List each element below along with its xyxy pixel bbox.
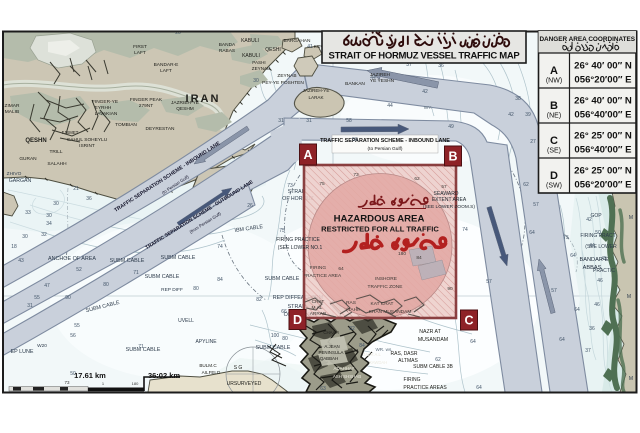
svg-text:74: 74 [462,227,468,233]
svg-text:90: 90 [65,295,71,301]
svg-text:JAZRIEH-YE: JAZRIEH-YE [171,100,199,106]
svg-text:100: 100 [271,333,280,339]
svg-text:M: M [629,376,633,382]
svg-text:JAZR A.L: JAZR A.L [363,352,381,357]
svg-text:NAZR AT: NAZR AT [419,329,441,335]
svg-text:32: 32 [41,232,47,238]
svg-text:80: 80 [282,336,288,342]
svg-text:27: 27 [530,139,536,145]
svg-text:EP LUNE: EP LUNE [11,349,34,355]
svg-text:(NE): (NE) [547,113,561,120]
svg-text:QABBAH: QABBAH [320,356,338,361]
svg-text:FIRING PRACTICE: FIRING PRACTICE [276,237,320,243]
svg-text:64: 64 [338,266,344,272]
svg-text:17.61 km: 17.61 km [74,371,106,380]
svg-text:58: 58 [346,118,352,124]
svg-text:74: 74 [217,244,223,250]
svg-text:TRILL: TRILL [49,149,62,155]
svg-text:A: A [303,148,312,162]
svg-text:D: D [550,170,558,182]
svg-text:B: B [448,150,457,164]
svg-text:21: 21 [73,186,79,192]
svg-text:ZHIVO: ZHIVO [7,171,22,177]
svg-text:64: 64 [470,339,476,345]
svg-text:SUBM CABLE: SUBM CABLE [110,258,145,264]
svg-text:36: 36 [438,63,444,69]
svg-text:QESHM: QESHM [176,106,194,112]
svg-text:TOMBIAN: TOMBIAN [115,122,137,128]
svg-text:BANKAN: BANKAN [345,81,365,87]
svg-text:57: 57 [533,202,539,208]
svg-text:ARRAB: ARRAB [310,311,327,317]
svg-text:180: 180 [132,381,139,386]
svg-text:KAT CRAT: KAT CRAT [371,301,394,307]
svg-text:JAZIREH: JAZIREH [370,72,391,78]
svg-text:82: 82 [256,297,262,303]
svg-text:46: 46 [594,302,600,308]
svg-text:TRAFFIC ZONE: TRAFFIC ZONE [368,284,403,290]
svg-text:MALIB: MALIB [5,109,19,115]
svg-text:38: 38 [515,96,521,102]
svg-text:64: 64 [570,253,576,259]
svg-text:82: 82 [349,326,355,332]
svg-text:M AL: M AL [312,305,323,311]
svg-text:26° 40′ 00″ N: 26° 40′ 00″ N [574,61,632,72]
svg-text:(SEE LOWER NO.1: (SEE LOWER NO.1 [278,245,323,251]
svg-text:57: 57 [551,288,557,294]
svg-text:PENINSULA: PENINSULA [319,350,344,355]
svg-text:(SEE LOWER ZOOM.S): (SEE LOWER ZOOM.S) [423,204,475,210]
svg-text:JAZIREH-YE: JAZIREH-YE [303,88,330,93]
svg-text:31: 31 [306,118,312,124]
svg-text:49: 49 [448,124,454,130]
svg-text:63: 63 [320,386,326,392]
svg-text:SUBM CABLE: SUBM CABLE [126,347,161,353]
svg-text:DEYRESTAN: DEYRESTAN [146,126,175,132]
svg-text:056°20′00″ E: 056°20′00″ E [574,75,632,86]
svg-text:BANDAR-E: BANDAR-E [154,62,179,68]
svg-text:KABULI: KABULI [241,38,259,44]
svg-text:73: 73 [64,380,70,385]
svg-text:(TAHII: (TAHII [346,307,360,313]
svg-text:279NT: 279NT [139,103,153,109]
svg-text:RESTRICTED FOR ALL TRAFFIC: RESTRICTED FOR ALL TRAFFIC [321,225,439,234]
svg-text:S G: S G [234,365,243,371]
svg-text:ZEYNAB: ZEYNAB [277,73,296,79]
svg-text:LARAK: LARAK [308,95,324,100]
svg-text:80: 80 [103,282,109,288]
svg-text:PEY-YE POSHTEN: PEY-YE POSHTEN [262,80,304,86]
svg-text:BANDA: BANDA [219,42,236,48]
svg-text:QESHI: QESHI [265,47,281,53]
svg-text:C: C [464,314,473,328]
svg-text:55: 55 [74,323,80,329]
svg-text:75: 75 [319,181,325,187]
svg-text:SUBM CABLE: SUBM CABLE [256,345,291,351]
svg-text:36: 36 [86,196,92,202]
svg-text:C: C [550,135,558,147]
svg-text:75: 75 [279,228,285,234]
svg-text:26: 26 [247,203,253,209]
svg-text:FIRING: FIRING [310,265,327,271]
svg-text:62: 62 [435,357,441,363]
svg-text:64: 64 [529,230,535,236]
svg-text:73: 73 [353,172,359,178]
svg-text:39: 39 [525,112,531,118]
svg-text:A.JEAN: A.JEAN [324,344,339,349]
svg-text:PRACTICE AREAS: PRACTICE AREAS [403,385,447,391]
svg-text:CHAAH: CHAAH [323,330,338,335]
svg-text:M: M [629,215,633,221]
svg-text:A: A [550,65,558,77]
svg-text:RAS: RAS [346,300,356,306]
svg-text:26° 25′ 00″ N: 26° 25′ 00″ N [574,166,632,177]
svg-text:52: 52 [76,267,82,273]
svg-text:LAFT: LAFT [134,50,146,56]
svg-text:SUBM CABLE: SUBM CABLE [145,274,180,280]
svg-text:FINGER PEAK: FINGER PEAK [130,97,163,103]
svg-text:GURAN: GURAN [19,156,37,162]
svg-text:31: 31 [27,303,33,309]
svg-text:30: 30 [253,78,259,84]
svg-text:31: 31 [278,118,284,124]
svg-text:34: 34 [46,221,52,227]
svg-text:AILFELD: AILFELD [202,370,221,375]
svg-text:B: B [550,100,558,112]
svg-text:KHAN MUSANDAM: KHAN MUSANDAM [369,309,412,315]
svg-text:SALAHH: SALAHH [47,161,67,167]
svg-text:26° 25′ 00″ N: 26° 25′ 00″ N [574,131,632,142]
svg-text:ZEYNAB: ZEYNAB [252,66,270,71]
svg-text:CRAT: CRAT [312,299,325,305]
svg-text:64: 64 [476,385,482,391]
svg-text:ASH SHSHAB: ASH SHSHAB [333,374,361,379]
svg-text:FIRST: FIRST [133,44,147,50]
svg-text:56: 56 [70,333,76,339]
svg-text:FJSMET: FJSMET [62,130,79,135]
svg-text:INSHORE: INSHORE [375,276,397,282]
svg-text:PRACTICE AREA: PRACTICE AREA [303,273,342,279]
svg-text:57: 57 [441,184,447,190]
svg-text:LAVAKIAN: LAVAKIAN [95,111,118,117]
svg-text:36:02 km: 36:02 km [148,371,180,380]
svg-text:EYRHH: EYRHH [95,105,112,111]
svg-text:55: 55 [34,295,40,301]
svg-text:YE YESHN: YE YESHN [370,78,395,84]
svg-text:GARGAN: GARGAN [9,178,32,184]
svg-text:FIRING: FIRING [404,377,421,383]
svg-text:56: 56 [352,137,358,143]
svg-text:(NW): (NW) [546,78,562,85]
svg-text:18: 18 [11,244,17,250]
svg-text:BARGAHAN: BARGAHAN [284,38,311,44]
svg-text:BANDAR-E: BANDAR-E [580,257,609,263]
svg-text:42: 42 [508,112,514,118]
svg-text:57: 57 [486,279,492,285]
svg-text:056°20′00″ E: 056°20′00″ E [574,180,632,191]
svg-text:30: 30 [22,234,28,240]
svg-text:46: 46 [597,278,603,284]
svg-text:UVELL: UVELL [178,318,194,324]
svg-text:75: 75 [563,235,569,241]
svg-text:(SEE LOWER: (SEE LOWER [585,244,617,250]
svg-text:84: 84 [217,277,223,283]
svg-text:SUBM CABLE 3B: SUBM CABLE 3B [413,364,453,370]
svg-text:ADAHHAY: ADAHHAY [334,366,355,371]
svg-text:80: 80 [193,286,199,292]
svg-text:WY.: WY. [424,105,433,111]
svg-text:(to Persian Gulf): (to Persian Gulf) [368,146,403,152]
svg-text:APYLINE: APYLINE [195,339,217,345]
svg-text:SUBM CABLE: SUBM CABLE [265,276,300,282]
svg-text:ISRINT: ISRINT [79,143,95,149]
svg-text:MUSANDAM: MUSANDAM [418,337,448,343]
svg-text:(SE): (SE) [547,148,561,155]
svg-text:RABAS: RABAS [219,48,235,54]
svg-text:64: 64 [559,337,565,343]
svg-text:BULM.C: BULM.C [199,363,217,368]
svg-text:EXTENT AREA: EXTENT AREA [432,197,467,203]
svg-text:LAFT: LAFT [160,68,172,74]
svg-text:ZIMAR: ZIMAR [5,103,20,109]
svg-text:44: 44 [387,103,393,109]
svg-text:FIRING PRACT: FIRING PRACT [580,233,615,239]
svg-text:PASHI: PASHI [252,60,265,65]
svg-text:30: 30 [53,201,59,207]
svg-text:30: 30 [46,213,52,219]
svg-text:62: 62 [523,182,529,188]
svg-text:RAS, DASR: RAS, DASR [391,351,418,357]
svg-text:41: 41 [307,44,313,50]
svg-text:D: D [293,313,302,327]
svg-text:056°40′00″ E: 056°40′00″ E [574,145,632,156]
svg-text:QESHN: QESHN [25,138,46,144]
svg-text:33: 33 [25,210,31,216]
svg-text:TRAFFIC SEPARATION SCHEME - IN: TRAFFIC SEPARATION SCHEME - INBOUND LANE [320,138,450,144]
svg-text:M: M [627,294,631,300]
svg-text:62: 62 [414,176,420,182]
svg-text:37: 37 [585,348,591,354]
svg-text:REP DIFF: REP DIFF [161,287,183,293]
svg-text:056°40′00″ E: 056°40′00″ E [574,110,632,121]
svg-text:47: 47 [44,283,50,289]
svg-text:26° 40′ 00″ N: 26° 40′ 00″ N [574,96,632,107]
svg-text:STRAIT OF HORMUZ VESSEL TRAFFI: STRAIT OF HORMUZ VESSEL TRAFFIC MAP [329,51,521,62]
svg-text:(SW): (SW) [546,183,562,190]
svg-text:84: 84 [416,255,422,261]
svg-text:SUBM CABLE: SUBM CABLE [161,255,196,261]
svg-text:ANCHOE OF AREA: ANCHOE OF AREA [48,256,96,262]
svg-text:URSURVEYED: URSURVEYED [227,381,262,387]
svg-text:HAZARDOUS AREA: HAZARDOUS AREA [334,214,425,225]
svg-text:ABBAS: ABBAS [583,265,602,271]
svg-text:FINGER-YE: FINGER-YE [92,99,118,105]
svg-text:GOP: GOP [590,213,602,219]
svg-text:84: 84 [359,343,365,349]
svg-text:KABULI: KABULI [242,53,260,59]
svg-text:90: 90 [447,286,453,292]
svg-text:71: 71 [133,270,139,276]
svg-text:42: 42 [422,89,428,95]
svg-text:CAHUL SOHEYLU: CAHUL SOHEYLU [67,137,108,143]
svg-text:RAWDAH: RAWDAH [369,360,387,365]
svg-text:64: 64 [574,307,580,313]
svg-text:W20: W20 [37,343,47,349]
svg-text:36: 36 [589,326,595,332]
svg-text:180: 180 [398,251,406,257]
svg-text:43: 43 [18,258,24,264]
